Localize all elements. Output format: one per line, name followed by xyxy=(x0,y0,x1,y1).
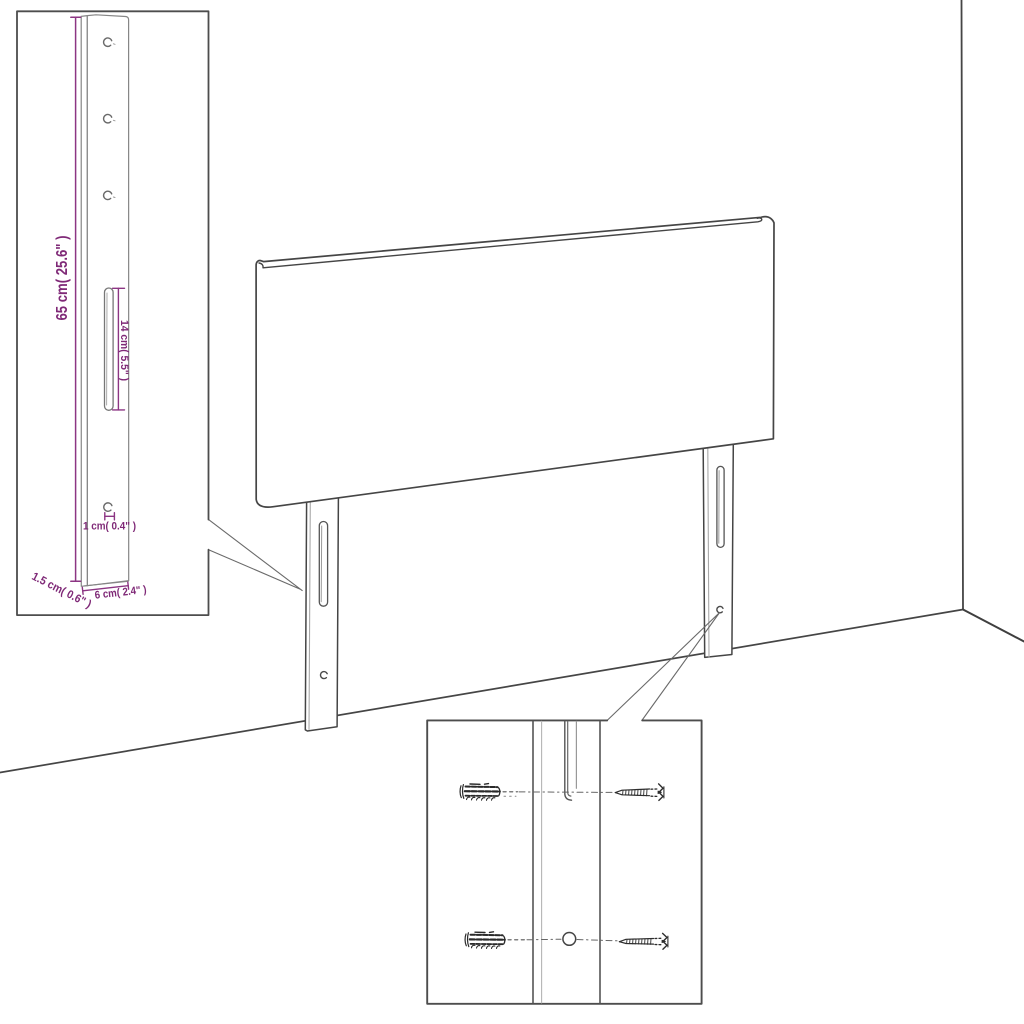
svg-text:1 cm( 0.4" ): 1 cm( 0.4" ) xyxy=(83,520,136,532)
svg-text:14 cm( 5.5" ): 14 cm( 5.5" ) xyxy=(118,320,130,381)
svg-text:65 cm( 25.6" ): 65 cm( 25.6" ) xyxy=(54,236,71,321)
